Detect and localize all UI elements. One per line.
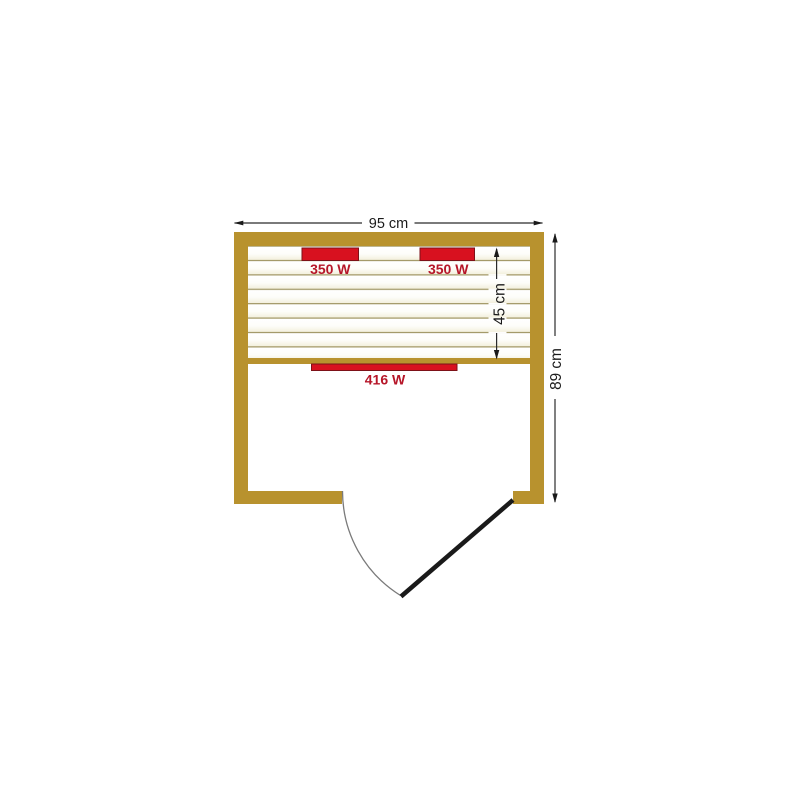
svg-text:45 cm: 45 cm [492, 283, 509, 325]
svg-text:350 W: 350 W [428, 261, 469, 277]
svg-text:89 cm: 89 cm [548, 348, 565, 390]
svg-text:95 cm: 95 cm [369, 216, 409, 232]
svg-text:350 W: 350 W [310, 261, 351, 277]
svg-text:416 W: 416 W [365, 372, 406, 388]
